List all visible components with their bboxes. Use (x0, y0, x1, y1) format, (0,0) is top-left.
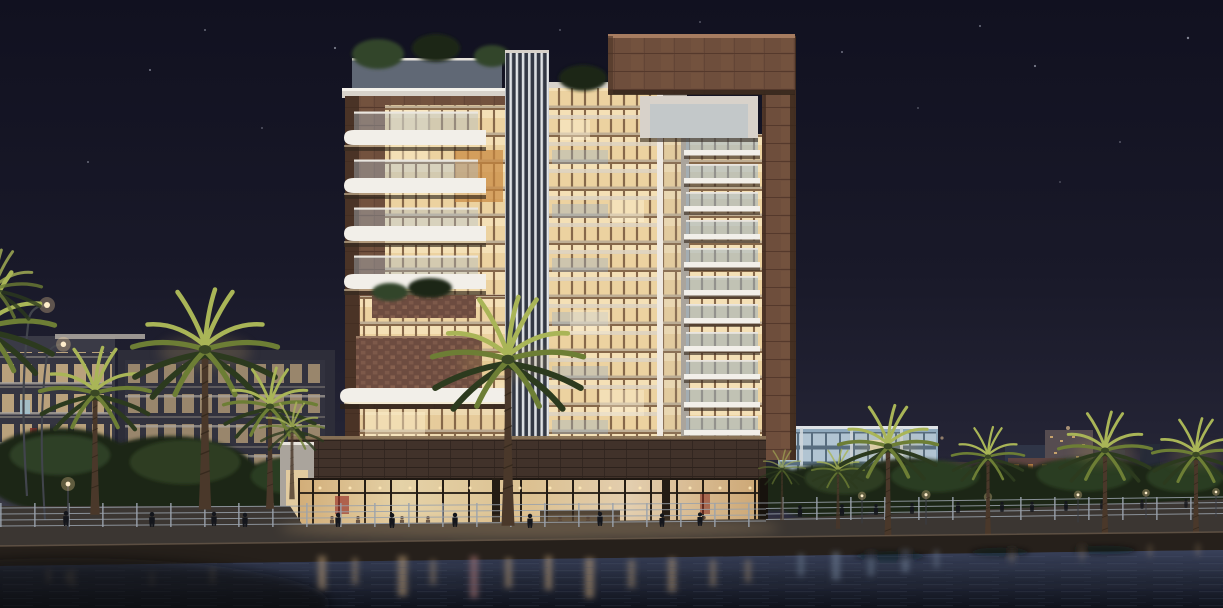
white-pier (657, 94, 687, 460)
balcony (684, 332, 760, 355)
balcony (344, 112, 486, 152)
balcony (684, 248, 760, 271)
balcony (684, 220, 760, 243)
vertical-fins-column (505, 50, 549, 462)
bright-window (570, 310, 610, 334)
balcony (344, 160, 486, 200)
balcony (684, 164, 760, 187)
balcony (684, 360, 760, 383)
parapet (55, 334, 145, 339)
railing-left (0, 503, 766, 527)
bright-window (365, 412, 425, 438)
balcony (684, 192, 760, 215)
balcony (684, 304, 760, 327)
balcony (344, 208, 486, 248)
bright-window (600, 390, 644, 416)
balcony (684, 416, 760, 439)
tower-right-balcony-stack (684, 134, 762, 460)
portal-beam (608, 36, 795, 94)
railing-right (766, 497, 1223, 520)
architectural-render-stage: Waterfront residential building at night… (0, 0, 1223, 608)
cool-lit-window (20, 400, 30, 414)
bright-window (610, 200, 644, 222)
recessed-glass (663, 100, 681, 456)
inner-glass (650, 104, 748, 138)
bright-window (560, 120, 590, 140)
main-tower (280, 34, 796, 532)
scene-rendering: Waterfront residential building at night… (0, 0, 1223, 608)
balcony (684, 276, 760, 299)
tower-left-block (340, 34, 532, 440)
brick-band (288, 438, 766, 478)
balcony (684, 388, 760, 411)
